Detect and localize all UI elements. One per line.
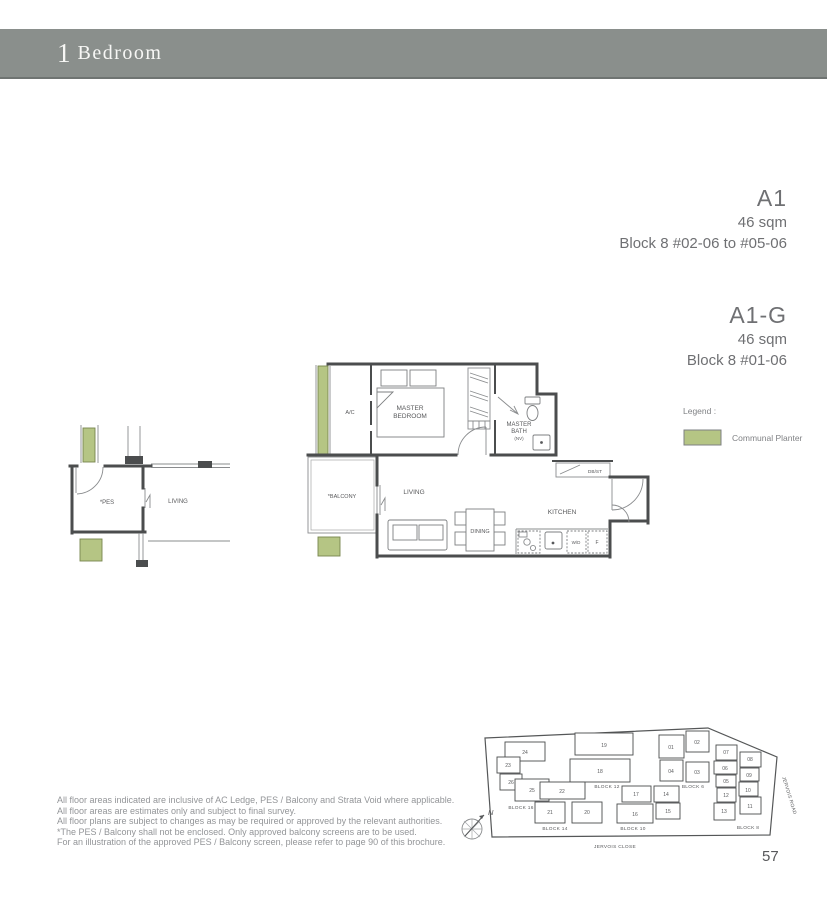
unit-info-a1: A1 46 sqm Block 8 #02-06 to #05-06	[619, 184, 787, 254]
compass-icon: N	[462, 808, 494, 839]
master-bath-label-1: MASTER	[506, 422, 532, 428]
washer-dryer-label: W/D	[572, 540, 581, 545]
unit-number: 13	[721, 809, 727, 815]
legend: Legend : Communal Planter	[683, 406, 802, 447]
block-label: BLOCK 14	[542, 826, 567, 832]
dbst-label: DB/ST	[588, 469, 602, 475]
living-label: LIVING	[403, 489, 424, 496]
unit-info-a1g: A1-G 46 sqm Block 8 #01-06	[687, 301, 787, 371]
section-banner: 1 Bedroom	[0, 29, 827, 79]
unit-number: 22	[559, 789, 565, 795]
unit-area: 46 sqm	[687, 329, 787, 350]
dining-label: DINING	[470, 529, 489, 535]
disclaimer-line: For an illustration of the approved PES …	[57, 837, 457, 848]
unit-number: 10	[745, 788, 751, 794]
unit-number: 08	[747, 757, 753, 763]
unit-number: 11	[747, 804, 752, 810]
unit-number: 25	[529, 788, 535, 794]
fridge-label: F	[595, 540, 598, 546]
unit-area: 46 sqm	[619, 212, 787, 233]
sitemap-block-8: 07 06 05 12 13 08 09 10 11 BLOCK 8	[714, 745, 761, 831]
road-label-jervois-road: JERVOIS ROAD	[780, 776, 797, 815]
unit-number: 15	[665, 809, 671, 815]
master-bath-label-2: BATH	[511, 429, 527, 435]
unit-number: 09	[746, 773, 752, 779]
sitemap-block-14: 22 21 20 BLOCK 14	[535, 782, 602, 832]
kitchen-label: KITCHEN	[548, 509, 577, 516]
sitemap-block-6: 01 02 04 03 BLOCK 6	[659, 731, 709, 790]
unit-number: 21	[547, 810, 553, 816]
sitemap-block-16: 24 23 26 25 BLOCK 16	[497, 742, 549, 811]
unit-number: 05	[723, 779, 729, 785]
disclaimer-line: All floor plans are subject to changes a…	[57, 816, 457, 827]
block-label: BLOCK 8	[737, 825, 759, 831]
sitemap-block-10: 17 14 16 15 BLOCK 10	[617, 786, 680, 832]
disclaimer-text: All floor areas indicated are inclusive …	[57, 795, 457, 848]
unit-title: A1	[619, 184, 787, 212]
unit-number: 01	[668, 745, 674, 751]
unit-number: 17	[633, 792, 639, 798]
disclaimer-line: *The PES / Balcony shall not be enclosed…	[57, 827, 457, 838]
ac-label: A/C	[345, 410, 354, 416]
page-number: 57	[762, 848, 779, 865]
unit-number: 24	[522, 750, 528, 756]
balcony-label: *BALCONY	[328, 494, 357, 500]
block-label: BLOCK 6	[682, 784, 704, 790]
road-label-jervois-close: JERVOIS CLOSE	[594, 844, 636, 850]
site-map: N 24 23 26 25 BLOCK 16 19 18 BLOCK 12 22…	[455, 716, 805, 861]
sitemap-block-12: 19 18 BLOCK 12	[570, 733, 633, 790]
banner-title: Bedroom	[78, 43, 163, 63]
master-bedroom-label-1: MASTER	[396, 405, 423, 412]
unit-number: 04	[668, 769, 674, 775]
communal-planter-swatch	[683, 429, 723, 447]
unit-number: 26	[508, 780, 514, 786]
unit-number: 18	[597, 769, 603, 775]
living-label-ground: LIVING	[168, 499, 188, 505]
unit-number: 12	[723, 793, 729, 799]
master-bath-label-3: (NV)	[514, 436, 524, 441]
block-label: BLOCK 16	[508, 805, 533, 811]
unit-number: 20	[584, 810, 590, 816]
banner-number: 1	[57, 40, 71, 67]
unit-levels: Block 8 #02-06 to #05-06	[619, 233, 787, 254]
unit-number: 14	[663, 792, 669, 798]
block-label: BLOCK 10	[620, 826, 645, 832]
unit-number: 23	[505, 763, 511, 769]
legend-item-label: Communal Planter	[732, 433, 802, 443]
unit-number: 03	[694, 770, 700, 776]
legend-title: Legend :	[683, 406, 802, 416]
block-label: BLOCK 12	[594, 784, 619, 790]
unit-number-highlighted: 06	[722, 766, 728, 772]
unit-number: 07	[723, 750, 729, 756]
unit-number: 19	[601, 743, 607, 749]
disclaimer-line: All floor areas are estimates only and s…	[57, 806, 457, 817]
compass-n-label: N	[488, 808, 494, 817]
unit-number: 16	[632, 812, 638, 818]
unit-levels: Block 8 #01-06	[687, 350, 787, 371]
unit-title: A1-G	[687, 301, 787, 329]
master-bedroom-label-2: BEDROOM	[393, 413, 427, 420]
disclaimer-line: All floor areas indicated are inclusive …	[57, 795, 457, 806]
pes-label: *PES	[100, 500, 114, 506]
unit-number: 02	[694, 740, 700, 746]
floorplan-a1-main: A/C MASTER BEDROOM MASTER BATH (NV) DB/S…	[300, 353, 660, 568]
floorplan-a1g-pes: *PES LIVING	[55, 420, 230, 570]
